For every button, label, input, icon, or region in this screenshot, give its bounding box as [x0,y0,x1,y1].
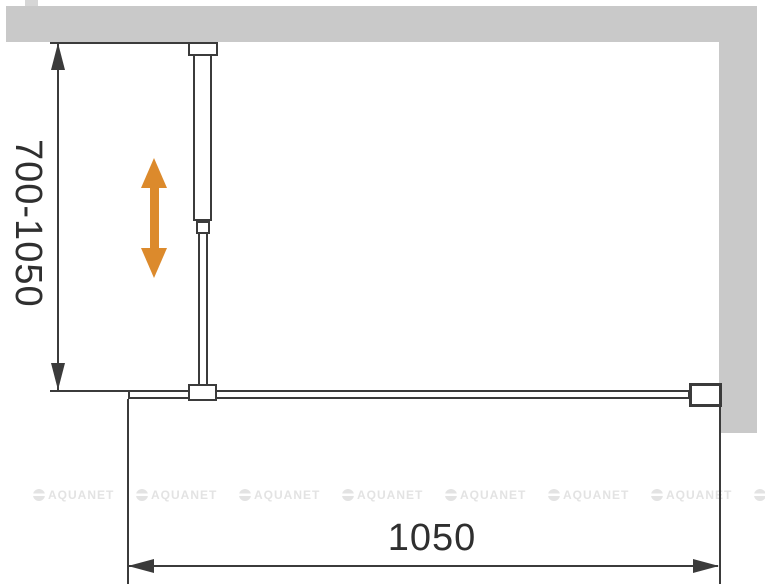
left-dimension-label: 700-1050 [8,139,48,299]
watermark: AQUANET [239,488,320,502]
watermark-text: AQUANET [666,488,732,502]
watermark: AQUANET [136,488,217,502]
extension-line-bottom-left [127,399,129,584]
watermark: AQUANET [754,488,765,502]
telescopic-collar [196,221,210,234]
arrow-down-icon [51,363,65,390]
aquanet-logo-icon [754,489,765,501]
support-bar-inner-tube [198,234,208,386]
aquanet-logo-icon [445,489,457,501]
arrow-right-icon [693,559,719,573]
watermark: AQUANET [445,488,526,502]
watermark-text: AQUANET [151,488,217,502]
arrow-left-icon [128,559,154,573]
top-wall [6,6,757,42]
adjust-arrow-up-head [141,158,167,188]
extension-line-left [50,390,128,392]
aquanet-logo-icon [239,489,251,501]
watermark-text: AQUANET [254,488,320,502]
wall-profile-bracket [689,383,722,407]
adjust-arrow-down-head [141,248,167,278]
watermark: AQUANET [548,488,629,502]
right-wall [719,6,757,433]
glass-clamp [188,384,217,401]
extension-line-bottom-right [719,407,721,584]
height-adjust-arrow-icon [141,158,167,278]
bottom-dimension-label: 1050 [352,518,512,558]
watermark-text: AQUANET [563,488,629,502]
arrow-up-icon [51,43,65,70]
aquanet-logo-icon [136,489,148,501]
aquanet-logo-icon [342,489,354,501]
aquanet-logo-icon [548,489,560,501]
adjust-arrow-shaft [150,188,159,248]
horizontal-dimension-line [129,565,718,567]
support-bar-outer-tube [193,55,212,221]
aquanet-logo-icon [33,489,45,501]
wall-corner-tab [25,0,38,6]
watermark-text: AQUANET [460,488,526,502]
watermark-text: AQUANET [357,488,423,502]
watermark: AQUANET [33,488,114,502]
aquanet-logo-icon [651,489,663,501]
watermark-text: AQUANET [48,488,114,502]
ceiling-wall-bracket [188,42,218,56]
installation-diagram: 700-1050 AQUANET AQUANET AQUANET AQUANET… [0,0,765,584]
vertical-dimension-line [57,44,59,390]
watermark: AQUANET [342,488,423,502]
